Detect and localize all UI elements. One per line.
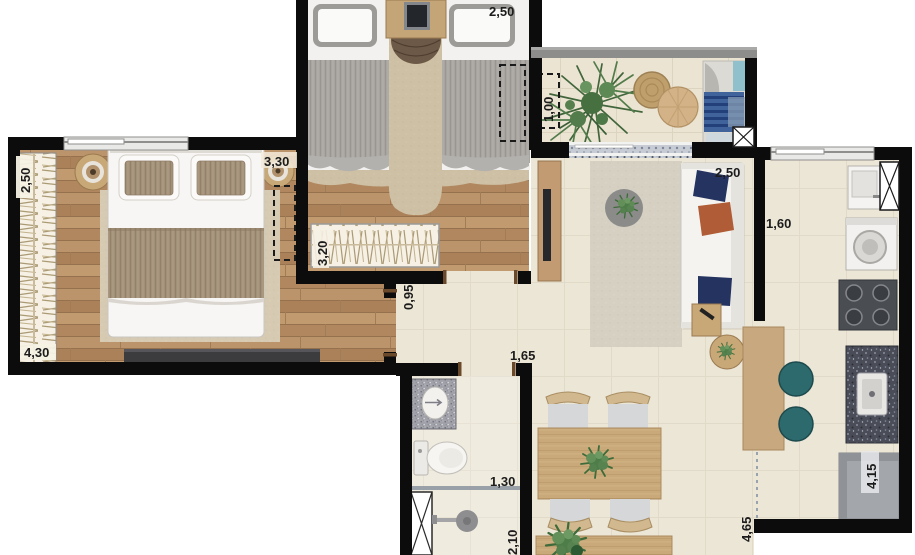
svg-text:2,50: 2,50 xyxy=(18,168,33,193)
svg-text:3,20: 3,20 xyxy=(315,241,330,266)
svg-text:4,30: 4,30 xyxy=(24,345,49,360)
svg-text:1,30: 1,30 xyxy=(490,474,515,489)
svg-text:2,50: 2,50 xyxy=(715,165,740,180)
svg-text:1,65: 1,65 xyxy=(510,348,535,363)
svg-text:0,95: 0,95 xyxy=(401,285,416,310)
svg-text:2,50: 2,50 xyxy=(489,4,514,19)
svg-text:1,00: 1,00 xyxy=(541,97,556,122)
svg-text:4,15: 4,15 xyxy=(864,464,879,489)
svg-text:4,65: 4,65 xyxy=(739,517,754,542)
svg-text:2,10: 2,10 xyxy=(505,530,520,555)
svg-text:3,30: 3,30 xyxy=(264,154,289,169)
svg-text:1,60: 1,60 xyxy=(766,216,791,231)
